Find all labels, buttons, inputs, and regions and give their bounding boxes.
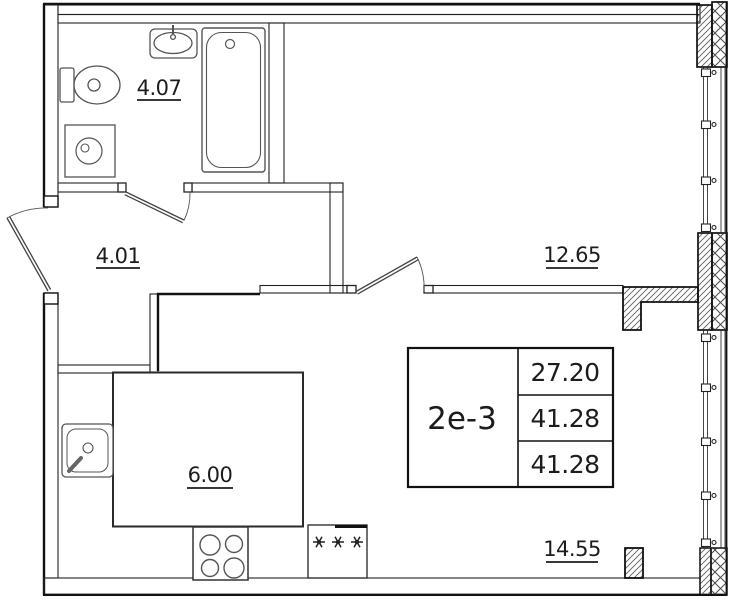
bathtub-icon: [202, 28, 265, 172]
stove-icon: [193, 527, 248, 580]
entry-door: [7, 208, 51, 291]
entry-jamb-top: [44, 196, 58, 207]
partition-bedroom-south-right: [433, 286, 623, 294]
wall-left-upper: [44, 5, 58, 207]
wall-bottom: [44, 578, 700, 595]
bathroom-door: [125, 192, 190, 223]
kitchen-zone-outline: [113, 373, 303, 527]
room-label-bedroom: 12.65: [543, 243, 601, 267]
floor-plan-svg: 4.07 4.01 12.65 6.00 14.55 2е-3 27.20 41…: [0, 0, 729, 600]
pier-bottom-right-outer: [711, 548, 727, 595]
partition-hall-bedroom: [330, 183, 343, 293]
pier-mid-right: [698, 233, 712, 330]
room-label-living: 14.55: [543, 537, 601, 561]
kitchen-sink-icon: [62, 424, 113, 477]
wall-bedroom-living-divider: [623, 287, 698, 330]
bath-door-jamb-left: [118, 183, 126, 192]
partition-bathroom-south-left: [58, 183, 118, 192]
partition-bathtub: [269, 23, 284, 183]
pillar-top-right: [697, 5, 712, 67]
wall-top-hatch: [58, 5, 700, 15]
bedroom-door-jamb-right: [424, 286, 433, 294]
pillar-top-right-outer: [712, 2, 727, 67]
room-label-kitchen: 6.00: [188, 463, 233, 487]
toilet-icon: [60, 66, 120, 104]
pier-bottom-right: [700, 548, 711, 595]
info-table-row-0: 27.20: [530, 358, 599, 387]
info-table-type: 2е-3: [427, 401, 497, 437]
washing-machine-icon: [65, 125, 115, 177]
info-table: 2е-3 27.20 41.28 41.28: [408, 348, 613, 487]
partition-bathroom-south-right: [192, 183, 343, 192]
bath-door-jamb-right: [184, 183, 192, 192]
interior-walls: [58, 23, 698, 578]
bathroom-sink-icon: [150, 25, 197, 58]
fixtures: [60, 25, 367, 580]
room-labels: 4.07 4.01 12.65 6.00 14.55: [96, 76, 601, 562]
pilaster-bottom: [625, 548, 643, 578]
wall-top-insulation: [58, 15, 700, 24]
floor-plan: 4.07 4.01 12.65 6.00 14.55 2е-3 27.20 41…: [0, 0, 729, 600]
room-label-bathroom: 4.07: [137, 76, 182, 100]
pier-mid-right-outer: [712, 233, 727, 330]
wall-left-lower: [44, 293, 58, 578]
info-table-row-1: 41.28: [530, 404, 599, 433]
entry-jamb-bottom: [44, 293, 58, 304]
window-upper-glass: [704, 67, 726, 233]
kitchen-niche-wall-edge: [158, 294, 260, 371]
room-label-hallway: 4.01: [96, 244, 141, 268]
bedroom-door: [356, 257, 424, 294]
doors: [7, 192, 424, 294]
refrigerator-icon: [308, 525, 367, 578]
bedroom-door-jamb-left: [347, 286, 356, 294]
info-table-row-2: 41.28: [530, 450, 599, 479]
partition-bedroom-south-left: [260, 286, 347, 294]
